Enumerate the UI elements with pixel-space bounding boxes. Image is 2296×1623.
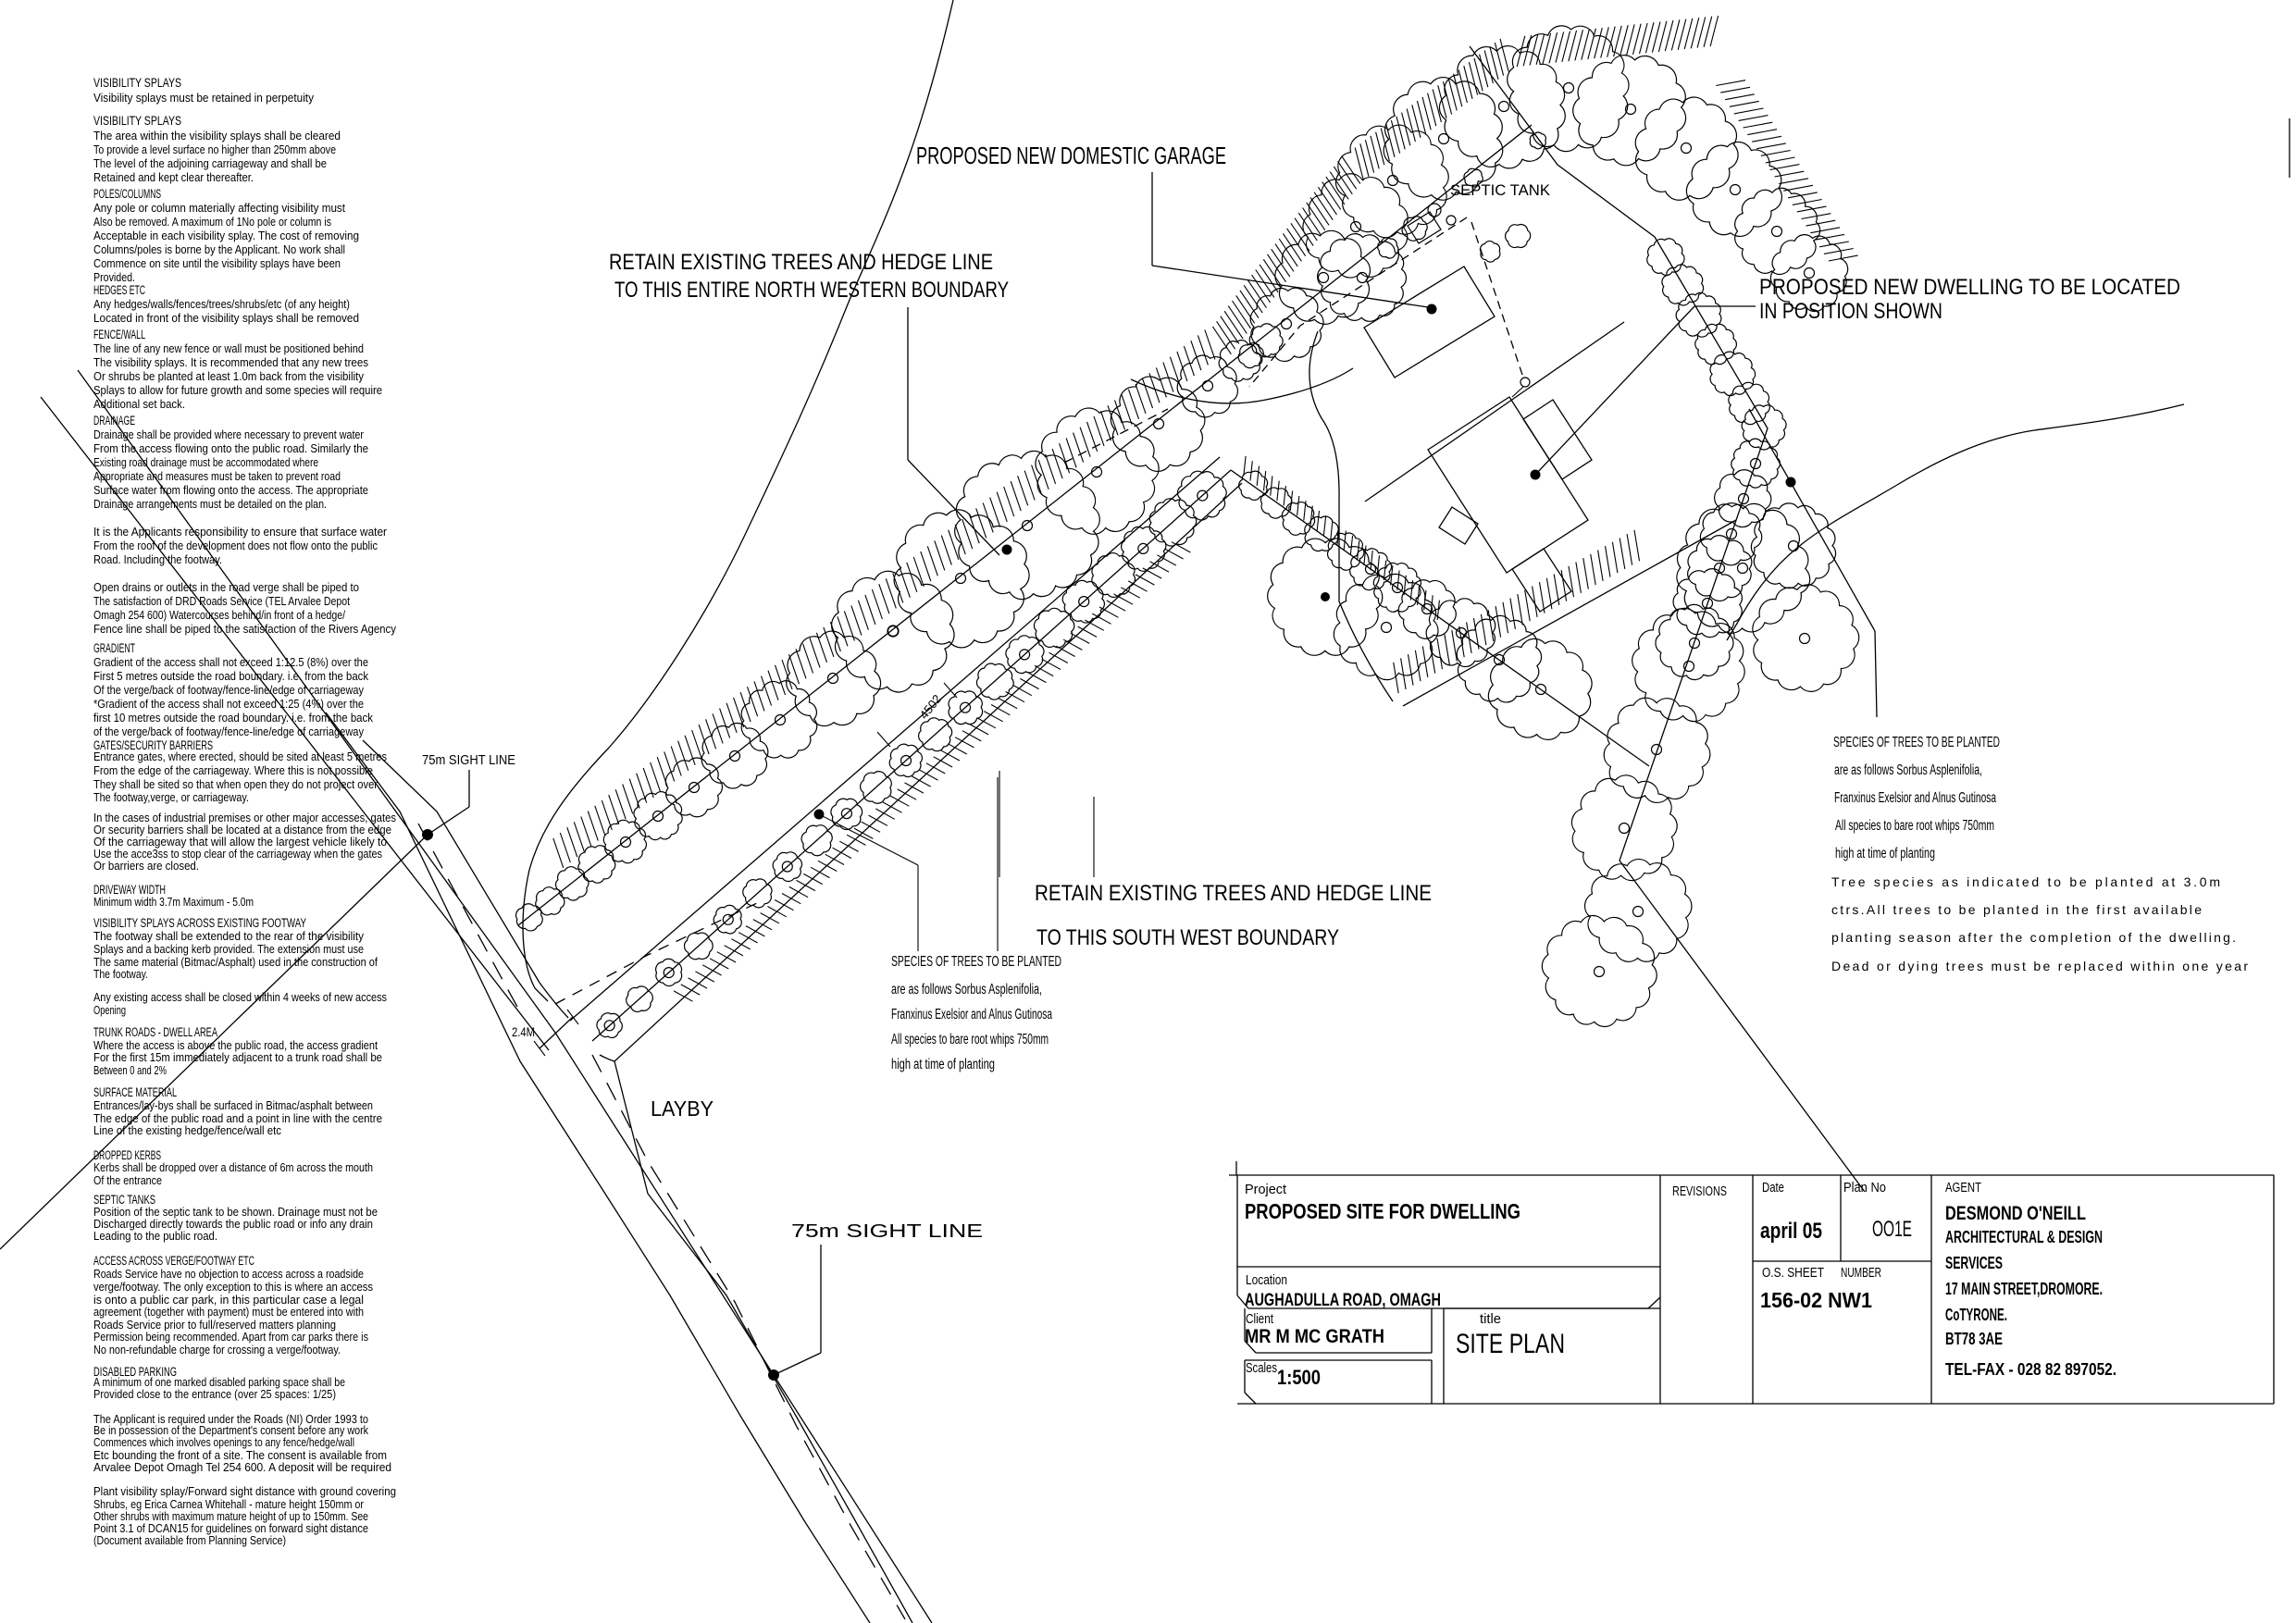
svg-text:From the roof of the developme: From the roof of the development does no… [93,539,378,552]
svg-text:1:500: 1:500 [1277,1366,1321,1389]
svg-text:TO THIS ENTIRE NORTH WESTERN B: TO THIS ENTIRE NORTH WESTERN BOUNDARY [614,278,1009,303]
svg-text:Splays to allow for future gro: Splays to allow for future growth and so… [93,383,382,397]
svg-text:Drainage shall be provided whe: Drainage shall be provided where necessa… [93,427,365,441]
svg-text:75m SIGHT LINE: 75m SIGHT LINE [422,752,515,768]
svg-text:Project: Project [1245,1182,1287,1197]
svg-text:Splays and a backing kerb prov: Splays and a backing kerb provided. The … [93,942,364,956]
svg-text:156-02 NW1: 156-02 NW1 [1760,1288,1872,1312]
svg-text:FENCE/WALL: FENCE/WALL [93,328,145,341]
svg-text:VISIBILITY SPLAYS ACROSS EXIST: VISIBILITY SPLAYS ACROSS EXISTING FOOTWA… [93,916,306,930]
svg-text:ARCHITECTURAL & DESIGN: ARCHITECTURAL & DESIGN [1945,1228,2103,1246]
svg-text:title: title [1480,1311,1501,1327]
svg-text:Existing road drainage must be: Existing road drainage must be accommoda… [93,455,318,469]
svg-text:TO THIS SOUTH WEST BOUNDARY: TO THIS SOUTH WEST BOUNDARY [1036,925,1339,950]
svg-text:Plant visibility splay/Forward: Plant visibility splay/Forward sight dis… [93,1484,396,1498]
svg-text:The level of the adjoining car: The level of the adjoining carriageway a… [93,156,327,170]
svg-text:DRAINAGE: DRAINAGE [93,414,135,427]
svg-text:SPECIES OF TREES TO BE PLANTED: SPECIES OF TREES TO BE PLANTED [1833,735,2000,750]
svg-text:SITE PLAN: SITE PLAN [1456,1329,1565,1359]
svg-text:Between 0 and 2%: Between 0 and 2% [93,1063,167,1077]
svg-text:Fence line shall be piped to t: Fence line shall be piped to the satisfa… [93,622,396,636]
svg-text:POLES/COLUMNS: POLES/COLUMNS [93,187,161,201]
svg-text:VISIBILITY SPLAYS: VISIBILITY SPLAYS [93,76,181,90]
svg-text:first 10 metres outside the ro: first 10 metres outside the road boundar… [93,711,373,725]
svg-text:VISIBILITY SPLAYS: VISIBILITY SPLAYS [93,114,181,128]
svg-text:No non-refundable charge for c: No non-refundable charge for crossing a … [93,1343,341,1357]
svg-text:AGENT: AGENT [1945,1180,1981,1196]
svg-text:high at time of planting: high at time of planting [1835,846,1935,861]
svg-text:Permission being recommended.: Permission being recommended. Apart from… [93,1330,368,1344]
svg-text:(Document available from Plann: (Document available from Planning Servic… [93,1533,286,1547]
svg-text:Gradient of the access shall n: Gradient of the access shall not exceed … [93,655,368,669]
svg-text:Roads Service have no objectio: Roads Service have no objection to acces… [93,1267,364,1281]
svg-text:Open drains or outlets in the: Open drains or outlets in the road verge… [93,580,359,594]
svg-text:AUGHADULLA ROAD, OMAGH: AUGHADULLA ROAD, OMAGH [1245,1291,1441,1310]
svg-text:They shall be sited so that wh: They shall be sited so that when open th… [93,777,379,791]
svg-text:Surface water from flowing ont: Surface water from flowing onto the acce… [93,483,368,497]
svg-text:From the edge of the carriagew: From the edge of the carriageway. Where … [93,763,373,777]
svg-text:Columns/poles is borne by the: Columns/poles is borne by the Applicant.… [93,242,345,256]
svg-text:Any existing access shall be c: Any existing access shall be closed with… [93,990,387,1004]
svg-text:SEPTIC TANK: SEPTIC TANK [1450,181,1551,199]
svg-text:CoTYRONE.: CoTYRONE. [1945,1306,2007,1324]
svg-text:The line of any new fence or w: The line of any new fence or wall must b… [93,341,364,355]
svg-text:Franxinus Exelsior and Alnus G: Franxinus Exelsior and Alnus Gutinosa [891,1007,1052,1022]
svg-text:LAYBY: LAYBY [651,1096,714,1121]
svg-text:REVISIONS: REVISIONS [1672,1183,1727,1199]
svg-text:Commences which involves openi: Commences which involves openings to any… [93,1435,354,1449]
svg-text:Date: Date [1762,1180,1784,1196]
svg-text:Franxinus Exelsior and Alnus G: Franxinus Exelsior and Alnus Gutinosa [1834,790,1996,806]
svg-text:Any hedges/walls/fences/trees/: Any hedges/walls/fences/trees/shrubs/etc… [93,297,350,311]
svg-text:All species to bare root whips: All species to bare root whips 750mm [1835,818,1994,834]
svg-text:Drainage arrangements must be: Drainage arrangements must be detailed o… [93,497,327,511]
svg-text:Kerbs shall be dropped over a: Kerbs shall be dropped over a distance o… [93,1160,373,1174]
svg-text:PROPOSED SITE FOR DWELLING: PROPOSED SITE FOR DWELLING [1245,1199,1520,1223]
svg-text:The footway.: The footway. [93,967,148,981]
svg-text:The visibility splays. It is: The visibility splays. It is recommended… [93,355,368,369]
svg-text:Of the entrance: Of the entrance [93,1173,162,1187]
svg-text:Location: Location [1246,1272,1287,1288]
svg-text:TRUNK ROADS - DWELL AREA: TRUNK ROADS - DWELL AREA [93,1025,217,1039]
svg-text:Any pole or column materially: Any pole or column materially affecting … [93,201,345,215]
svg-text:Road. Including the footway.: Road. Including the footway. [93,552,222,566]
svg-text:For the first 15m immediately: For the first 15m immediately adjacent t… [93,1050,382,1064]
svg-text:Dead or dying trees must be re: Dead or dying trees must be replaced wit… [1831,959,2248,973]
svg-text:Retained and kept clear therea: Retained and kept clear thereafter. [93,170,254,184]
svg-text:BT78 3AE: BT78 3AE [1945,1330,2003,1348]
svg-text:GRADIENT: GRADIENT [93,641,135,655]
svg-text:Tree species as indicated to b: Tree species as indicated to be planted … [1831,874,2220,889]
svg-text:Located in front of the visibi: Located in front of the visibility splay… [93,311,359,325]
svg-text:Opening: Opening [93,1003,126,1017]
svg-text:Visibility splays must be reta: Visibility splays must be retained in pe… [93,91,314,105]
svg-text:are as follows Sorbus Asplenif: are as follows Sorbus Asplenifolia, [891,982,1042,997]
svg-text:The footway,verge, or carriage: The footway,verge, or carriageway. [93,790,249,804]
svg-text:SERVICES: SERVICES [1945,1254,2003,1272]
svg-text:RETAIN EXISTING TREES AND HEDG: RETAIN EXISTING TREES AND HEDGE LINE [609,250,993,275]
svg-text:Scales: Scales [1246,1360,1277,1376]
svg-text:SPECIES OF TREES TO BE PLANTED: SPECIES OF TREES TO BE PLANTED [891,954,1061,970]
svg-text:Also be removed. A maximum of: Also be removed. A maximum of 1No pole o… [93,215,331,229]
svg-text:MR M MC GRATH: MR M MC GRATH [1245,1326,1384,1347]
svg-text:HEDGES ETC: HEDGES ETC [93,283,145,297]
svg-text:The area within the visibility: The area within the visibility splays sh… [93,129,341,142]
svg-text:Additional set back.: Additional set back. [93,397,185,411]
svg-text:75m SIGHT LINE: 75m SIGHT LINE [791,1221,983,1242]
svg-text:Provided close to the entrance: Provided close to the entrance (over 25 … [93,1387,336,1401]
svg-text:2.4M: 2.4M [512,1025,535,1039]
svg-text:17 MAIN STREET,DROMORE.: 17 MAIN STREET,DROMORE. [1945,1280,2103,1298]
svg-text:april 05: april 05 [1760,1219,1822,1244]
svg-text:TEL-FAX - 028 82 897052.: TEL-FAX - 028 82 897052. [1945,1360,2116,1379]
svg-text:IN POSITION SHOWN: IN POSITION SHOWN [1759,299,1942,324]
svg-text:Plan No: Plan No [1843,1180,1886,1196]
svg-text:OO1E: OO1E [1872,1217,1912,1242]
svg-text:PROPOSED NEW DOMESTIC GARAGE: PROPOSED NEW DOMESTIC GARAGE [916,142,1226,169]
svg-text:From the access flowing onto t: From the access flowing onto the public … [93,441,368,455]
svg-text:ACCESS ACROSS VERGE/FOOTWAY ET: ACCESS ACROSS VERGE/FOOTWAY ETC [93,1254,254,1268]
svg-text:It is the Applicants responsib: It is the Applicants responsibility to e… [93,525,388,539]
svg-text:Omagh 254 600) Watercourses be: Omagh 254 600) Watercourses behind/in fr… [93,608,345,622]
svg-text:O.S. SHEET: O.S. SHEET [1762,1265,1824,1281]
svg-text:Entrance gates, where erected,: Entrance gates, where erected, should be… [93,750,387,763]
svg-text:agreement (together with payme: agreement (together with payment) must b… [93,1305,364,1319]
svg-text:Provided.: Provided. [93,270,135,284]
svg-text:All species to bare root whips: All species to bare root whips 750mm [891,1032,1049,1047]
svg-text:The footway shall be extended: The footway shall be extended to the rea… [93,929,364,943]
svg-text:of the verge/back of footway/f: of the verge/back of footway/fence-line/… [93,725,364,738]
svg-text:SURFACE MATERIAL: SURFACE MATERIAL [93,1085,177,1099]
svg-text:high at time of planting: high at time of planting [891,1057,995,1072]
svg-text:Line of the existing hedge/fen: Line of the existing hedge/fence/wall et… [93,1123,281,1137]
svg-text:Entrances/lay-bys shall be sur: Entrances/lay-bys shall be surfaced in B… [93,1098,373,1112]
svg-text:First 5 metres outside the roa: First 5 metres outside the road boundary… [93,669,368,683]
svg-text:To provide a level surface no: To provide a level surface no higher tha… [93,142,336,156]
svg-text:PROPOSED NEW DWELLING TO BE LO: PROPOSED NEW DWELLING TO BE LOCATED [1759,275,2180,300]
svg-text:RETAIN EXISTING TREES AND HEDG: RETAIN EXISTING TREES AND HEDGE LINE [1035,881,1432,906]
svg-text:Minimum width 3.7m Maximum -: Minimum width 3.7m Maximum - 5.0m [93,895,254,909]
svg-text:Client: Client [1246,1311,1274,1327]
svg-text:are as follows Sorbus Asplenif: are as follows Sorbus Asplenifolia, [1834,762,1982,778]
svg-text:Leading to the public road.: Leading to the public road. [93,1229,217,1243]
svg-text:Appropriate and measures must: Appropriate and measures must be taken t… [93,469,341,483]
svg-text:Arvalee Depot Omagh Tel 2: Arvalee Depot Omagh Tel 254 600. A depos… [93,1460,391,1474]
svg-text:Commence on site until the vis: Commence on site until the visibility sp… [93,256,341,270]
svg-text:NUMBER: NUMBER [1841,1265,1881,1281]
svg-text:DESMOND O'NEILL: DESMOND O'NEILL [1945,1203,2086,1224]
svg-text:Of the verge/back of footway/f: Of the verge/back of footway/fence-line/… [93,683,364,697]
svg-text:ctrs.All trees to be planted i: ctrs.All trees to be planted in the firs… [1831,902,2202,917]
svg-text:Or shrubs be planted at least: Or shrubs be planted at least 1.0m back … [93,369,364,383]
svg-text:The satisfaction of DRD Roads: The satisfaction of DRD Roads Service (T… [93,594,350,608]
svg-text:Acceptable in each visibility: Acceptable in each visibility splay. The… [93,229,359,242]
svg-text:verge/footway. The only excep: verge/footway. The only exception to thi… [93,1280,373,1294]
svg-text:*Gradient of the access shall: *Gradient of the access shall not exceed… [93,697,364,711]
svg-text:Or barriers are closed.: Or barriers are closed. [93,859,199,873]
